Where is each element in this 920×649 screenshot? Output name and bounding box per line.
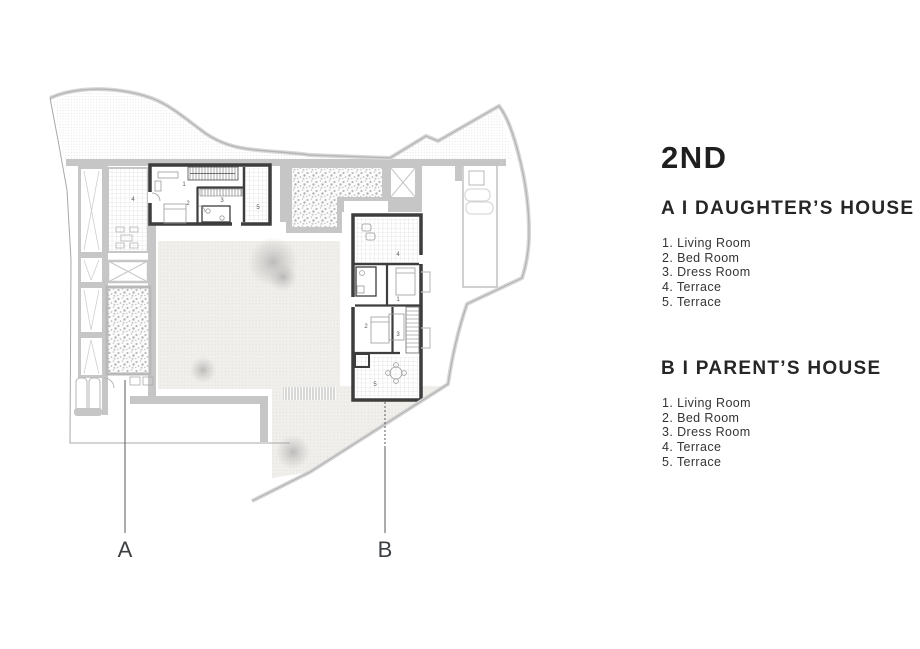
list-item: 1. Living Room (662, 236, 911, 251)
list-item: 5. Terrace (662, 295, 911, 310)
list-item: 3. Dress Room (662, 425, 911, 440)
tree-icon (269, 263, 297, 291)
marker-b-label: B (378, 537, 393, 562)
tree-icon (190, 357, 216, 383)
roof-area (53, 92, 512, 160)
unit-a: 1 2 3 5 (148, 165, 270, 226)
page-title: 2ND (661, 140, 728, 176)
list-item: 2. Bed Room (662, 411, 911, 426)
floor-plan-drawing: 4 (0, 0, 600, 649)
list-item: 1. Living Room (662, 396, 911, 411)
ramp-strip (78, 165, 105, 378)
list-item: 2. Bed Room (662, 251, 911, 266)
tree-icon (276, 435, 310, 469)
parents-room-list: 1. Living Room 2. Bed Room 3. Dress Room… (662, 396, 911, 470)
deck-area (463, 163, 497, 287)
section-parents-heading: B I PARENT’S HOUSE (661, 358, 911, 380)
daughters-room-list: 1. Living Room 2. Bed Room 3. Dress Room… (662, 236, 911, 310)
list-item: 3. Dress Room (662, 265, 911, 280)
list-item: 5. Terrace (662, 455, 911, 470)
section-parents-house: B I PARENT’S HOUSE 1. Living Room 2. Bed… (661, 358, 911, 470)
section-daughters-heading: A I DAUGHTER’S HOUSE (661, 198, 911, 220)
list-item: 4. Terrace (662, 440, 911, 455)
unit-a-terrace4: 4 (108, 168, 148, 252)
page: { "title": "2ND", "sections": [ { "id": … (0, 0, 920, 649)
section-daughters-house: A I DAUGHTER’S HOUSE 1. Living Room 2. B… (661, 198, 911, 310)
marker-a-label: A (118, 537, 133, 562)
floor-plan-area: 4 (0, 0, 600, 649)
unit-b: 4 1 2 3 5 (351, 215, 430, 400)
list-item: 4. Terrace (662, 280, 911, 295)
left-skylight-and-garden (107, 261, 150, 374)
